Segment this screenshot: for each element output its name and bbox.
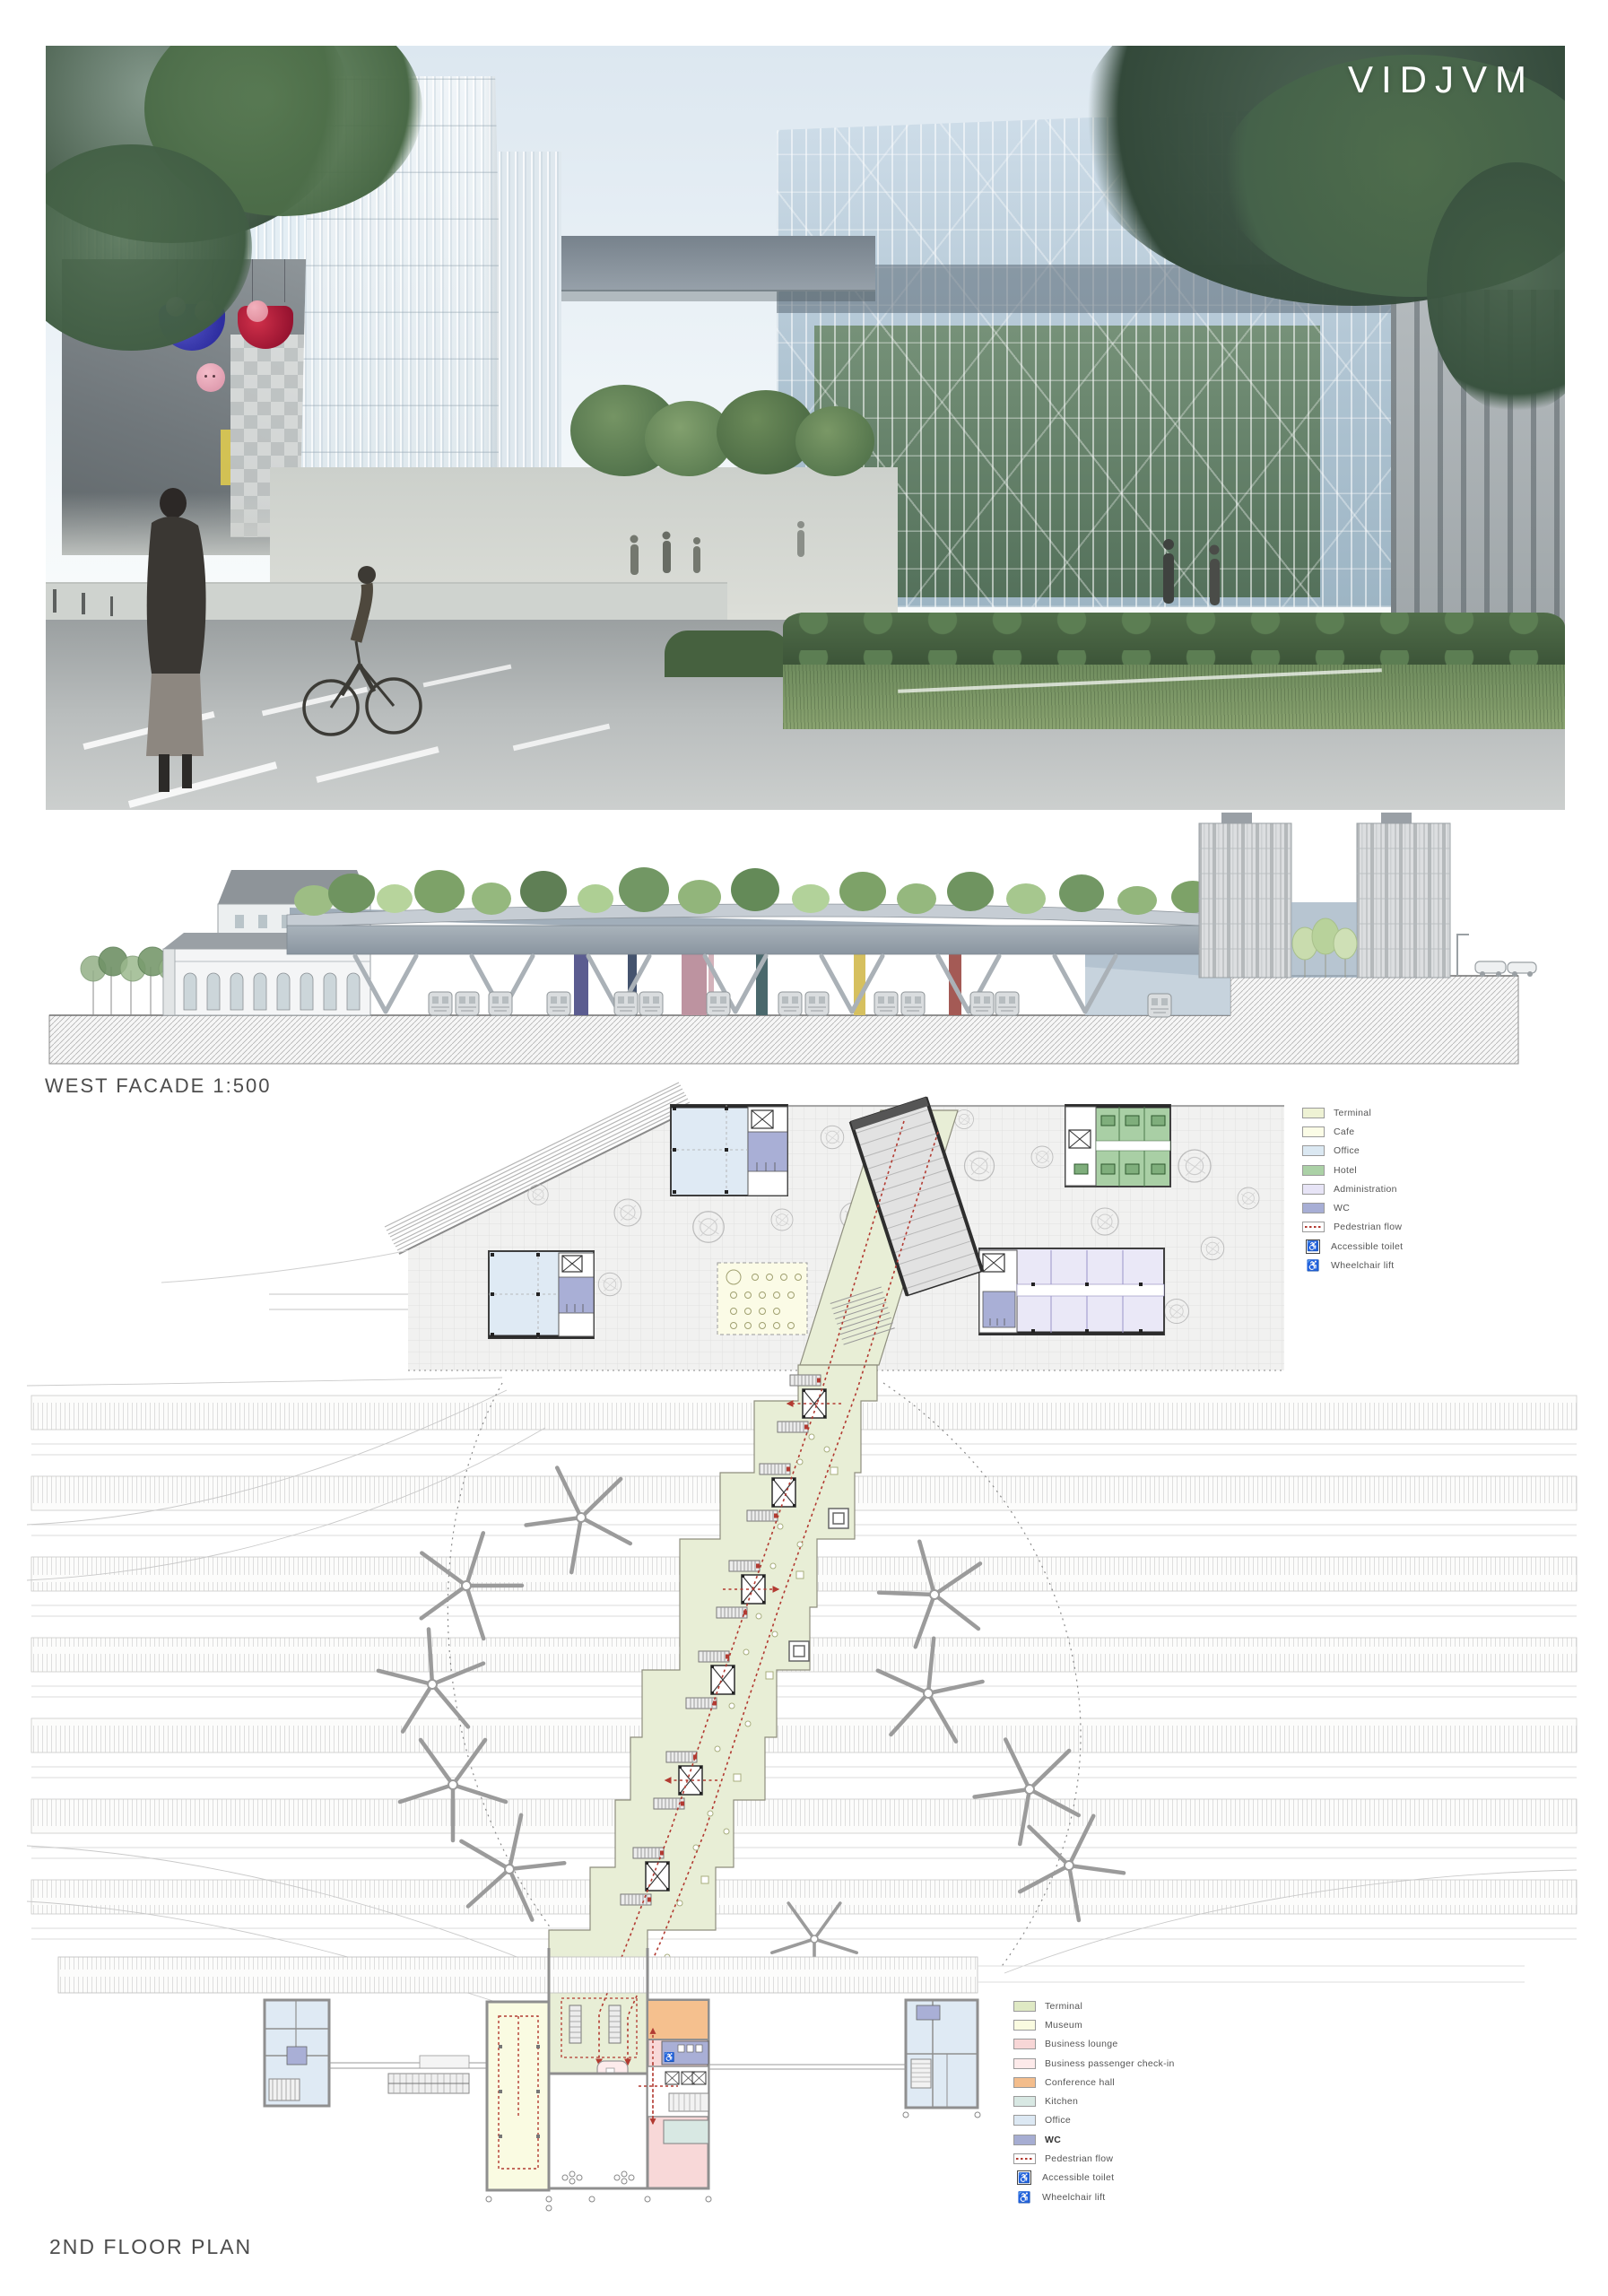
legend-swatch — [1013, 2001, 1036, 2012]
cafe-terrace — [717, 1263, 807, 1335]
legend-item: Kitchen — [1013, 2092, 1175, 2110]
legend-label: Hotel — [1334, 1165, 1357, 1176]
legend-swatch — [1302, 1165, 1325, 1176]
legend-swatch — [1013, 2077, 1036, 2088]
wheelchair-icon: ♿ — [1306, 1239, 1320, 1254]
legend-label: Business lounge — [1045, 2039, 1118, 2049]
legend-item: Pedestrian flow — [1013, 2149, 1175, 2168]
wheelchair-icon: ♿ — [1306, 1258, 1320, 1273]
legend-label: Wheelchair lift — [1331, 1260, 1394, 1271]
street-right — [1457, 935, 1536, 977]
legend-item: ♿ Wheelchair lift — [1302, 1256, 1403, 1274]
elevator-bank — [665, 2072, 706, 2084]
roof-trees — [294, 867, 1214, 916]
residential-towers — [1199, 813, 1450, 978]
legend-label: Pedestrian flow — [1334, 1222, 1402, 1232]
legend-item: ♿ Accessible toilet — [1302, 1237, 1403, 1256]
wheelchair-icon: ♿ — [1017, 2190, 1031, 2205]
legend-swatch — [1013, 2020, 1036, 2031]
legend-swatch — [1013, 2058, 1036, 2069]
legend-swatch — [1302, 1145, 1325, 1156]
hotel-block — [1065, 1105, 1170, 1187]
atrium — [549, 2074, 648, 2188]
trains — [429, 992, 1171, 1017]
legend-swatch — [1302, 1203, 1325, 1213]
legend-label: WC — [1045, 2135, 1061, 2145]
legend-item: Office — [1013, 2111, 1175, 2130]
flow-dash — [1305, 1226, 1322, 1228]
legend-label: Business passenger check-in — [1045, 2058, 1175, 2069]
office-block-2 — [489, 1251, 594, 1338]
station-platforms — [58, 1957, 1525, 1993]
legend-label: Museum — [1045, 2020, 1082, 2031]
plan-label: 2ND FLOOR PLAN — [49, 2235, 252, 2259]
legend-swatch — [1302, 1108, 1325, 1118]
legend-label: WC — [1334, 1203, 1350, 1213]
legend-swatch — [1013, 2135, 1036, 2145]
legend-label: Pedestrian flow — [1045, 2153, 1113, 2164]
legend-item: Conference hall — [1013, 2073, 1175, 2092]
legend-swatch — [1013, 2039, 1036, 2049]
legend-top: Terminal Cafe Office Hotel Administratio… — [1302, 1103, 1403, 1275]
legend-item: WC — [1013, 2130, 1175, 2149]
legend-item: Terminal — [1013, 1996, 1175, 2015]
right-stair — [669, 2093, 708, 2111]
right-block: ♿ — [639, 2000, 708, 2188]
legend-item: Administration — [1302, 1179, 1403, 1198]
legend-item: Business passenger check-in — [1013, 2054, 1175, 2073]
far-right-wing — [906, 2000, 978, 2108]
legend-item: Hotel — [1302, 1161, 1403, 1179]
legend-bottom: Terminal Museum Business lounge Business… — [1013, 1996, 1175, 2206]
legend-item: Museum — [1013, 2015, 1175, 2034]
administration-block — [979, 1248, 1164, 1335]
museum-wing — [487, 2002, 549, 2190]
legend-label: Cafe — [1334, 1126, 1354, 1137]
legend-item: ♿ Accessible toilet — [1013, 2169, 1175, 2187]
legend-label: Office — [1334, 1145, 1360, 1156]
legend-item: Cafe — [1302, 1122, 1403, 1141]
wing-stair — [911, 2059, 931, 2088]
west-facade-elevation — [0, 0, 1608, 1072]
legend-item: Business lounge — [1013, 2035, 1175, 2054]
flow-dash — [1016, 2158, 1033, 2160]
legend-label: Wheelchair lift — [1042, 2192, 1105, 2203]
legend-label: Administration — [1334, 1184, 1397, 1195]
left-wing — [265, 2000, 329, 2106]
legend-label: Conference hall — [1045, 2077, 1115, 2088]
legend-flow-swatch — [1302, 1222, 1325, 1232]
canopy-deck — [287, 904, 1230, 954]
legend-item: Pedestrian flow — [1302, 1218, 1403, 1237]
wheelchair-icon-plan: ♿ — [664, 2051, 674, 2063]
legend-item: ♿ Wheelchair lift — [1013, 2187, 1175, 2206]
long-stair — [388, 2056, 469, 2093]
wheelchair-icon: ♿ — [1017, 2170, 1031, 2185]
legend-label: Kitchen — [1045, 2096, 1078, 2107]
legend-item: Terminal — [1302, 1103, 1403, 1122]
legend-swatch — [1302, 1184, 1325, 1195]
legend-item: WC — [1302, 1198, 1403, 1217]
presentation-board: VIDJVM — [0, 0, 1608, 2296]
legend-flow-swatch — [1013, 2153, 1036, 2164]
legend-item: Office — [1302, 1142, 1403, 1161]
legend-label: Accessible toilet — [1042, 2172, 1114, 2183]
legend-swatch — [1302, 1126, 1325, 1137]
legend-swatch — [1013, 2096, 1036, 2107]
legend-label: Terminal — [1045, 2001, 1082, 2012]
legend-label: Terminal — [1334, 1108, 1371, 1118]
office-block-1 — [671, 1105, 787, 1196]
legend-label: Accessible toilet — [1331, 1241, 1403, 1252]
legend-swatch — [1013, 2115, 1036, 2126]
legend-label: Office — [1045, 2115, 1071, 2126]
